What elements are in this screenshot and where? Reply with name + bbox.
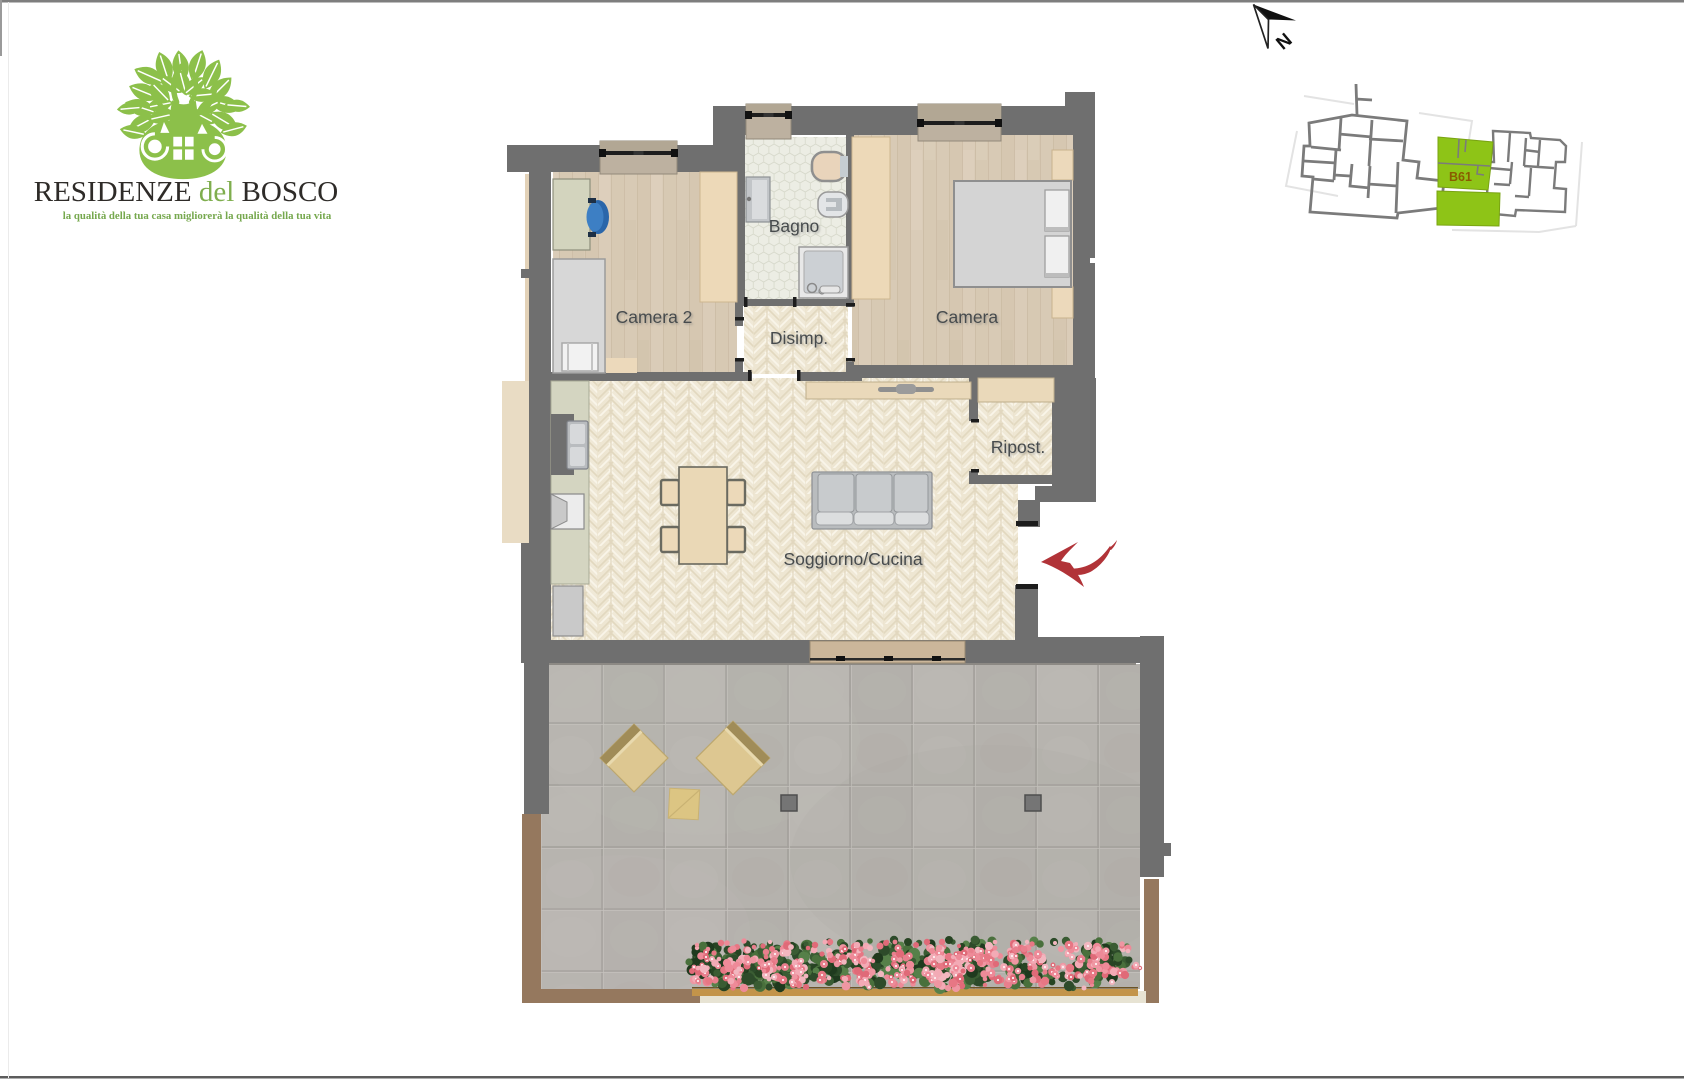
svg-text:la qualità della tua casa migl: la qualità della tua casa migliorerà la …	[63, 210, 332, 222]
svg-text:Camera 2: Camera 2	[616, 307, 693, 327]
svg-text:N: N	[1272, 30, 1296, 55]
svg-text:B61: B61	[1449, 170, 1472, 184]
svg-text:RESIDENZE del BOSCO: RESIDENZE del BOSCO	[34, 176, 339, 208]
svg-text:Camera: Camera	[936, 307, 999, 327]
svg-text:Soggiorno/Cucina: Soggiorno/Cucina	[783, 549, 922, 569]
svg-text:Bagno: Bagno	[769, 216, 820, 236]
svg-text:Disimp.: Disimp.	[770, 328, 828, 348]
svg-text:Ripost.: Ripost.	[991, 437, 1045, 457]
